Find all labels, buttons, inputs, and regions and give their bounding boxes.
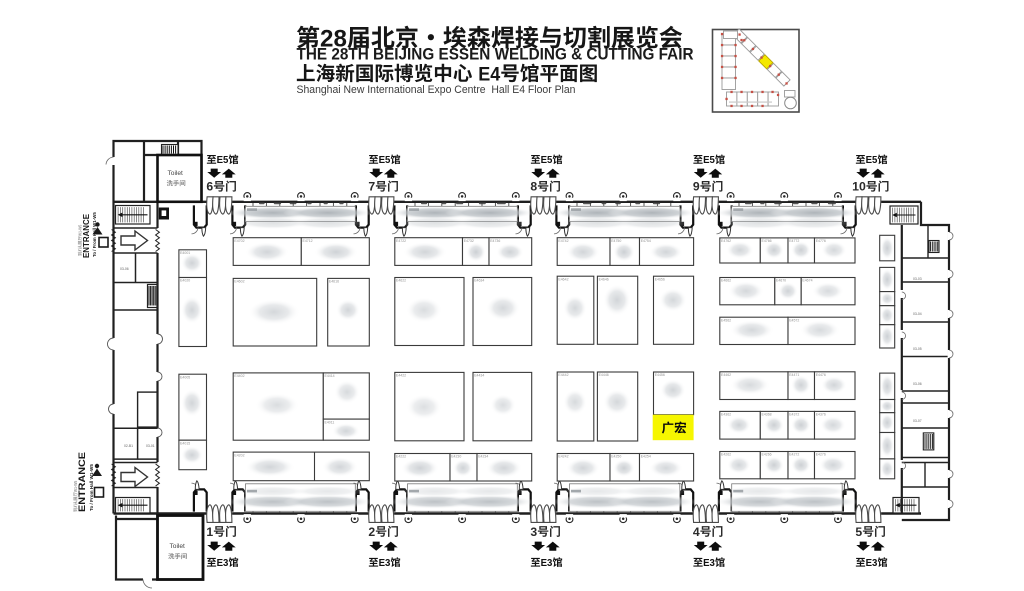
svg-text:E4242: E4242 [558, 455, 568, 459]
svg-text:E4015: E4015 [180, 441, 190, 445]
svg-text:E4476: E4476 [816, 373, 826, 377]
svg-text:E4754: E4754 [641, 239, 651, 243]
svg-text:E4674: E4674 [802, 279, 812, 283]
svg-text:Shanghai New International Exp: Shanghai New International Expo Centre H… [297, 84, 576, 96]
svg-text:E4732: E4732 [464, 239, 474, 243]
svg-text:E4736: E4736 [490, 239, 500, 243]
svg-text:6: 6 [206, 180, 213, 194]
svg-text:E4616: E4616 [329, 280, 339, 284]
svg-text:To / From Hall W1-W5: To / From Hall W1-W5 [89, 464, 94, 511]
svg-text:E4262: E4262 [721, 453, 731, 457]
svg-text:E4742: E4742 [558, 239, 568, 243]
svg-text:Toilet: Toilet [168, 170, 184, 177]
svg-text:E4005: E4005 [180, 375, 190, 379]
svg-text:5: 5 [855, 525, 862, 539]
svg-text:THE 28TH BEIJING ESSEN WELDING: THE 28TH BEIJING ESSEN WELDING & CUTTING… [297, 45, 694, 64]
svg-text:E4254: E4254 [641, 455, 651, 459]
svg-text:E3: E3 [379, 558, 391, 569]
svg-text:E5: E5 [379, 155, 391, 166]
svg-text:E3: E3 [541, 558, 553, 569]
svg-text:ENTRANCE: ENTRANCE [77, 452, 87, 512]
svg-text:E4602: E4602 [234, 280, 244, 284]
svg-text:8: 8 [530, 180, 537, 194]
svg-text:E4266: E4266 [762, 453, 772, 457]
svg-text:2: 2 [368, 525, 375, 539]
svg-text:E3: E3 [866, 558, 878, 569]
svg-text:E4414: E4414 [325, 374, 335, 378]
svg-text:E4622: E4622 [396, 279, 406, 283]
svg-text:E4446: E4446 [599, 373, 609, 377]
svg-text:E4776: E4776 [816, 239, 826, 243]
svg-text:E4712: E4712 [303, 239, 313, 243]
svg-text:03-06: 03-06 [913, 382, 922, 386]
svg-text:E4434: E4434 [474, 374, 484, 378]
svg-text:Toilet: Toilet [170, 543, 186, 550]
svg-text:E4250: E4250 [611, 455, 621, 459]
svg-text:E4572: E4572 [789, 318, 799, 322]
svg-text:E4462: E4462 [721, 373, 731, 377]
svg-text:E4750: E4750 [611, 239, 621, 243]
svg-text:E4456: E4456 [655, 373, 665, 377]
svg-text:E5: E5 [217, 155, 229, 166]
svg-text:E4276: E4276 [816, 453, 826, 457]
svg-text:E4372: E4372 [789, 413, 799, 417]
svg-text:03-05: 03-05 [913, 347, 922, 351]
svg-text:03-04: 03-04 [913, 312, 922, 316]
svg-text:E4368: E4368 [762, 413, 772, 417]
svg-text:W1-W5: W1-W5 [78, 224, 83, 236]
svg-text:E4422: E4422 [396, 374, 406, 378]
svg-text:7: 7 [368, 180, 375, 194]
svg-text:E5: E5 [703, 155, 715, 166]
svg-text:4: 4 [693, 525, 700, 539]
svg-text:E4646: E4646 [599, 277, 609, 281]
svg-text:E4230: E4230 [451, 455, 461, 459]
svg-text:E4: E4 [478, 63, 500, 85]
svg-text:03-07: 03-07 [913, 419, 922, 423]
svg-text:W1-W5: W1-W5 [73, 480, 78, 492]
svg-text:E4272: E4272 [789, 453, 799, 457]
svg-text:E4202: E4202 [234, 453, 244, 457]
svg-text:03-03: 03-03 [913, 277, 922, 281]
svg-text:E4011: E4011 [325, 420, 335, 424]
svg-text:E4234: E4234 [478, 455, 488, 459]
svg-text:ENTRANCE: ENTRANCE [82, 214, 91, 258]
svg-text:03-06: 03-06 [120, 267, 129, 271]
svg-text:E4722: E4722 [396, 239, 406, 243]
svg-text:E4020: E4020 [180, 279, 190, 283]
svg-text:10: 10 [852, 180, 866, 194]
svg-text:E4634: E4634 [474, 279, 484, 283]
svg-text:3: 3 [530, 525, 537, 539]
svg-text:E4662: E4662 [721, 279, 731, 283]
svg-text:E4702: E4702 [234, 239, 244, 243]
svg-text:E4376: E4376 [816, 413, 826, 417]
svg-text:E3: E3 [217, 558, 229, 569]
svg-text:E4642: E4642 [558, 277, 568, 281]
svg-text:03-01: 03-01 [146, 444, 155, 448]
svg-text:E5: E5 [866, 155, 878, 166]
svg-text:E4562: E4562 [721, 318, 731, 322]
svg-text:E4656: E4656 [655, 277, 665, 281]
svg-text:E4670: E4670 [776, 279, 786, 283]
svg-text:02-B1: 02-B1 [124, 444, 133, 448]
svg-text:9: 9 [693, 180, 700, 194]
svg-text:E4222: E4222 [396, 455, 406, 459]
svg-text:E5: E5 [541, 155, 553, 166]
svg-text:E4362: E4362 [721, 413, 731, 417]
svg-text:E4442: E4442 [558, 373, 568, 377]
svg-text:E4762: E4762 [721, 239, 731, 243]
svg-text:1: 1 [206, 525, 213, 539]
svg-text:E4402: E4402 [234, 374, 244, 378]
svg-text:E3: E3 [703, 558, 715, 569]
